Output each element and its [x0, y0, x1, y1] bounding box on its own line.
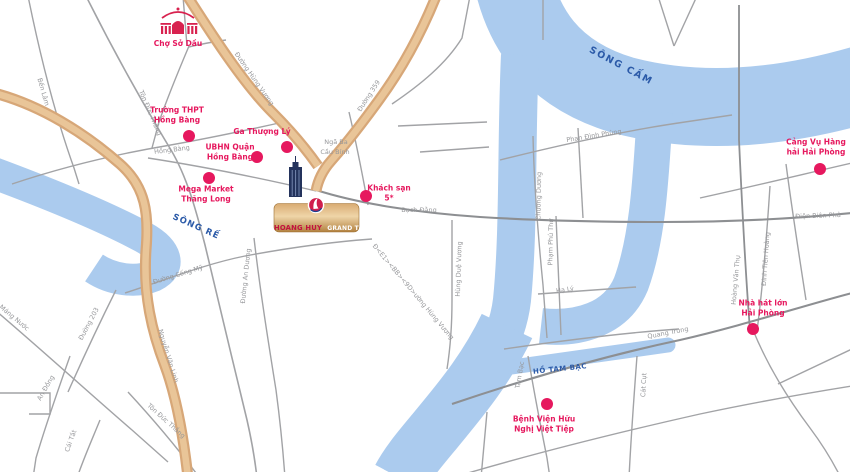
- poi-label-truong-thpt-hong-bang: Trường THPT Hồng Bàng: [150, 105, 204, 125]
- hoang-huy-card-title[interactable]: HOANG HUY GRAND TOWER: [274, 217, 359, 233]
- road-north-fork-a: [658, 0, 674, 46]
- poi-label-benh-vien-viet-tiep: Bệnh Viện Hữu Nghị Việt Tiệp: [513, 414, 575, 434]
- road-port-diagonal: [700, 163, 850, 198]
- road-north-fork-b: [674, 0, 697, 46]
- poi-dot-mega-market[interactable]: [203, 172, 215, 184]
- rivers: [0, 0, 850, 472]
- map-canvas: SÔNG CẤM SÔNG RẾ HỒ TAM BẠC Bến Lâm Tôn …: [0, 0, 850, 472]
- road-port-vertical: [786, 164, 806, 300]
- poi-dot-cang-vu-hang-hai[interactable]: [814, 163, 826, 175]
- road-hoang-van-thu-bridge: [739, 5, 750, 330]
- road-north-3: [420, 147, 489, 152]
- street-label-bach-dang: Bạch Đằng: [401, 207, 436, 214]
- street-label-cau-binh: Cầu Bính: [320, 149, 349, 156]
- poi-dot-ga-thuong-ly[interactable]: [281, 141, 293, 153]
- river-tam-bac-lower: [400, 326, 507, 472]
- road-203: [68, 290, 116, 392]
- street-label-hung-due-vuong: Hùng Duệ Vương: [455, 241, 463, 297]
- road-hung-due-vuong: [447, 220, 452, 369]
- road-hospital-west: [481, 412, 487, 472]
- street-label-pham-phu-thu: Phạm Phú Thứ: [547, 219, 554, 266]
- poi-dot-benh-vien-viet-tiep[interactable]: [541, 398, 553, 410]
- road-north-2: [398, 122, 487, 126]
- poi-label-khach-san-5-sao: Khách sạn 5*: [367, 183, 410, 203]
- poi-label-ga-thuong-ly: Ga Thượng Lý: [233, 127, 290, 137]
- poi-dot-nha-hat-lon[interactable]: [747, 323, 759, 335]
- map-artwork: [0, 0, 850, 472]
- street-label-nga-ba: Ngã Ba: [324, 139, 347, 146]
- hoang-huy-logo: [308, 197, 323, 212]
- road-an-duong: [254, 238, 285, 472]
- grand-tower-name: GRAND TOWER: [327, 225, 380, 232]
- poi-label-cang-vu-hang-hai: Cảng Vụ Hàng hải Hải Phòng: [786, 137, 846, 157]
- road-ben-lam: [28, 0, 79, 184]
- river-song-cam: [510, 0, 850, 107]
- road-south-2: [778, 349, 850, 384]
- road-cai-tat: [77, 420, 100, 472]
- poi-label-mega-market: Mega Market Thăng Long: [178, 184, 233, 204]
- poi-dot-truong-thpt-hong-bang[interactable]: [183, 130, 195, 142]
- road-359-tan: [316, 0, 437, 191]
- tower-building-icon: [289, 156, 302, 197]
- street-label-cat-cut: Cát Cụt: [640, 373, 648, 398]
- poi-label-cho-so-dau: Chợ Sở Dầu: [154, 39, 202, 49]
- poi-label-ubnd-quan-hong-bang: UBHN Quận Hồng Bàng: [205, 142, 254, 162]
- street-label-dien-bien-phu: Điện Biên Phủ: [795, 212, 841, 220]
- poi-label-nha-hat-lon: Nhà hát lớn Hải Phòng: [739, 298, 788, 318]
- street-label-chuong-duong: Chương Dương: [535, 172, 542, 221]
- hoang-huy-name: HOANG HUY: [274, 224, 322, 232]
- road-cat-cut: [629, 356, 637, 472]
